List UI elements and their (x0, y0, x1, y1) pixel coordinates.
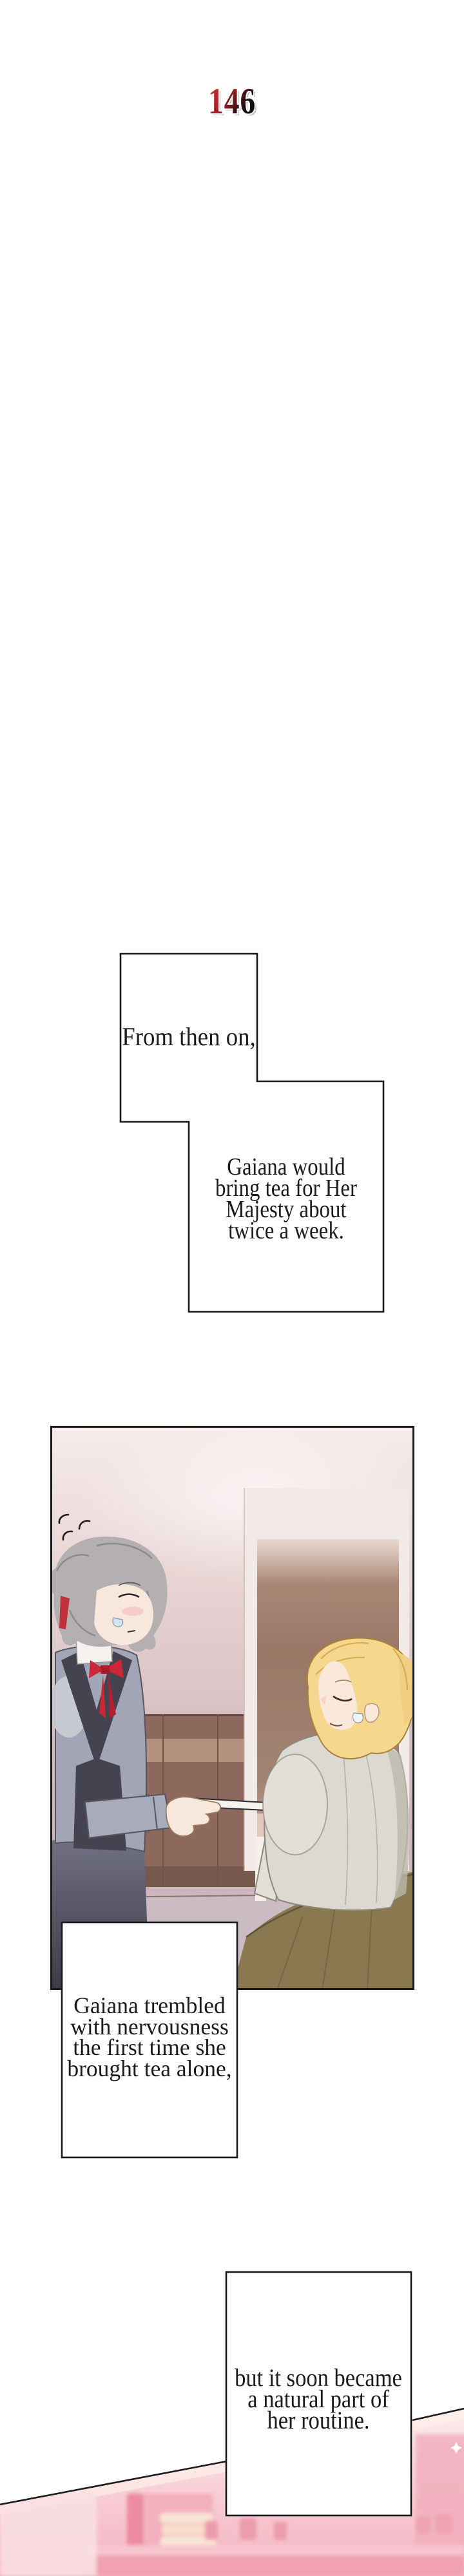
svg-text:146: 146 (208, 81, 256, 122)
